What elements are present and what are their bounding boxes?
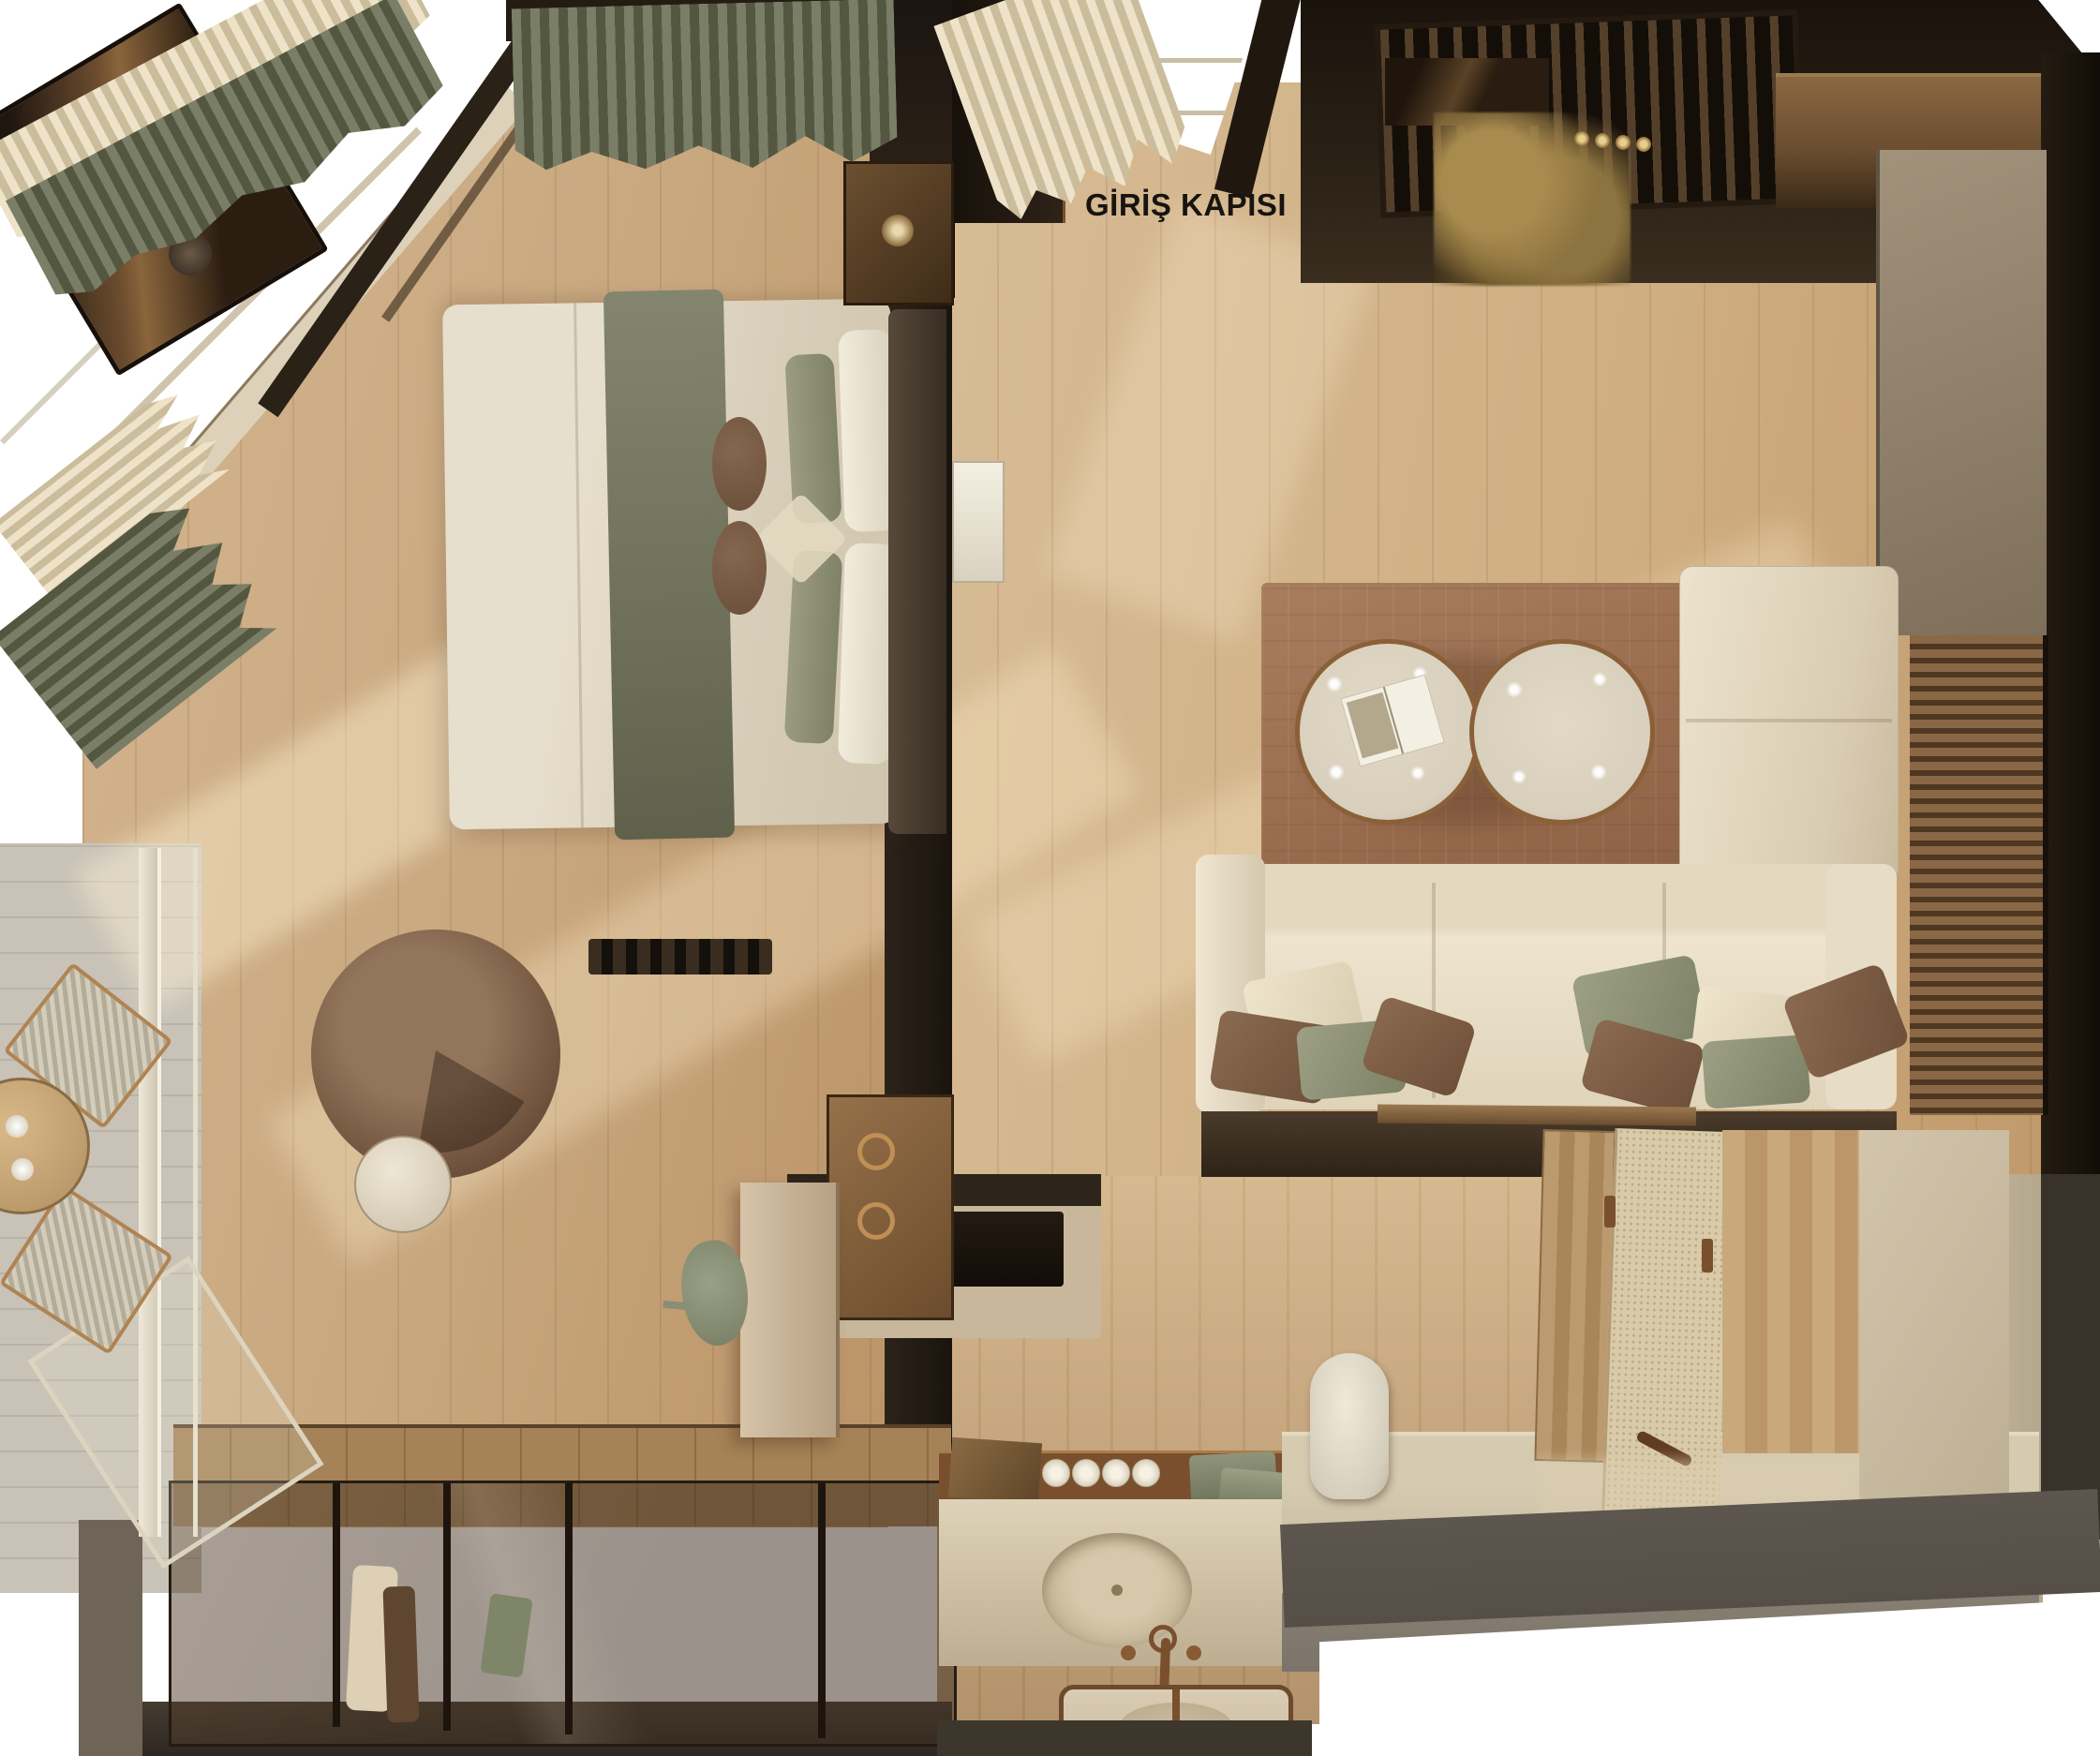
- exterior-wall-right: [2041, 52, 2100, 1181]
- floor-shadow-strip: [937, 1720, 1312, 1756]
- glass-icon: [1636, 137, 1651, 152]
- pillow-brown-round: [712, 417, 767, 511]
- cup-icon: [6, 1115, 28, 1138]
- ring-handle-icon: [857, 1202, 895, 1240]
- shower-door-wood: [1534, 1129, 1616, 1463]
- nightstand-top: [843, 161, 954, 305]
- hinge-icon: [1702, 1239, 1713, 1272]
- cup-icon: [11, 1158, 34, 1181]
- table-lamp-icon: [882, 215, 914, 246]
- magazine-photo: [1347, 692, 1399, 759]
- coffee-table: [1469, 639, 1655, 825]
- luggage-bench: [588, 939, 772, 975]
- headboard: [888, 309, 946, 834]
- hanging-garment-brown: [382, 1585, 419, 1722]
- towel-roll: [1102, 1459, 1130, 1487]
- nightstand-bottom: [827, 1094, 954, 1320]
- wall-right-lower: [2041, 1174, 2100, 1540]
- drain-icon: [1111, 1585, 1123, 1596]
- wall-panel-tv: [952, 461, 1005, 583]
- plaster-wall-topright: [1876, 150, 2047, 635]
- faucet-handle: [1186, 1645, 1201, 1660]
- ceramic-vase: [1310, 1353, 1389, 1499]
- bar-glasses: [1574, 126, 1668, 154]
- pillow-sage: [784, 353, 841, 524]
- hinge-icon: [1604, 1196, 1616, 1228]
- floor-board: [1378, 1105, 1696, 1126]
- pillow-brown-round: [712, 521, 767, 615]
- glass-divider: [333, 1483, 340, 1727]
- faucet-spout: [1149, 1625, 1177, 1653]
- wardrobe-glass-front: [169, 1481, 957, 1747]
- slat-accent-wall: [1910, 635, 2048, 1115]
- glass-divider: [565, 1483, 573, 1734]
- coffee-table: [1295, 639, 1481, 825]
- faucet-handle: [1121, 1645, 1136, 1660]
- armchair-swirl: [334, 948, 538, 1153]
- glass-icon: [1574, 131, 1589, 146]
- towel-roll: [1132, 1459, 1160, 1487]
- sofa-chaise: [1679, 566, 1899, 881]
- side-table: [354, 1136, 452, 1233]
- pillow-sage: [784, 550, 843, 744]
- writing-desk: [740, 1183, 840, 1437]
- shower-wall-beige: [1859, 1130, 2009, 1556]
- glass-divider: [818, 1483, 826, 1738]
- duvet-fold: [573, 303, 584, 827]
- wall-strip-left: [79, 1520, 142, 1756]
- cushion-sage: [1702, 1034, 1811, 1109]
- wooden-tray: [948, 1437, 1042, 1504]
- apartment-top-view: GİRİŞ KAPISI: [0, 0, 2100, 1756]
- shower-wall-planks: [1722, 1130, 1861, 1453]
- glass-icon: [1616, 135, 1631, 150]
- entrance-label: GİRİŞ KAPISI: [1085, 187, 1287, 223]
- swivel-armchair: [311, 930, 560, 1179]
- ring-handle-icon: [857, 1133, 895, 1170]
- glass-divider: [443, 1483, 451, 1731]
- glass-icon: [1595, 133, 1610, 148]
- open-magazine: [1340, 675, 1444, 767]
- hanging-towel-green: [480, 1593, 532, 1677]
- towel-roll: [1042, 1459, 1070, 1487]
- towel-roll: [1072, 1459, 1100, 1487]
